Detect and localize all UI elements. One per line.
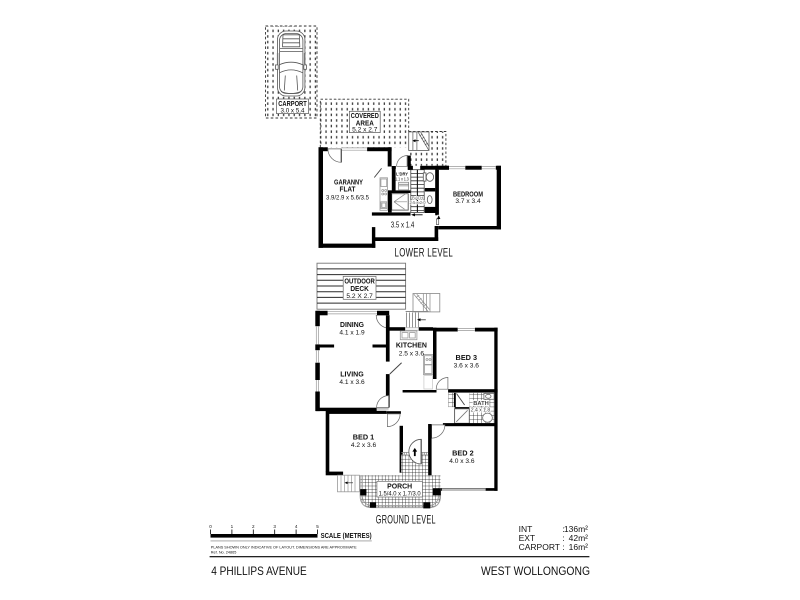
svg-text:4.0 x 3.6: 4.0 x 3.6 xyxy=(449,458,475,465)
svg-text:4.1 x 1.9: 4.1 x 1.9 xyxy=(339,329,365,336)
svg-text:SCALE (METRES): SCALE (METRES) xyxy=(321,531,372,540)
svg-text:4: 4 xyxy=(295,524,298,529)
svg-text:4.2 x 3.6: 4.2 x 3.6 xyxy=(351,442,377,449)
svg-text:5.2 x 2.7: 5.2 x 2.7 xyxy=(352,127,378,134)
svg-text:3.6 x 3.6: 3.6 x 3.6 xyxy=(454,362,480,369)
svg-text:1.5/4.0 x 1.7/3.0: 1.5/4.0 x 1.7/3.0 xyxy=(379,491,421,498)
svg-text:CARPORT: CARPORT xyxy=(519,542,560,552)
svg-text:5.2 X 2.7: 5.2 X 2.7 xyxy=(346,293,373,300)
svg-text:3.0 x 5.4: 3.0 x 5.4 xyxy=(281,108,305,115)
svg-text:GROUND LEVEL: GROUND LEVEL xyxy=(376,514,436,527)
svg-text:5: 5 xyxy=(316,524,319,529)
svg-text:2.5 x 2.0: 2.5 x 2.0 xyxy=(410,200,427,205)
svg-text:WEST WOLLONGONG: WEST WOLLONGONG xyxy=(481,564,590,578)
svg-text:0: 0 xyxy=(209,524,212,529)
svg-text::: : xyxy=(562,542,564,552)
svg-text:4.1 x 3.6: 4.1 x 3.6 xyxy=(339,379,365,386)
svg-text:16m²: 16m² xyxy=(569,542,589,552)
svg-text:2.4 x 1.8: 2.4 x 1.8 xyxy=(471,407,491,413)
svg-text:4 PHILLIPS AVENUE: 4 PHILLIPS AVENUE xyxy=(211,564,307,578)
svg-text:BATH: BATH xyxy=(473,401,489,407)
svg-text:LOWER LEVEL: LOWER LEVEL xyxy=(395,246,454,259)
svg-text:3.5 x 1.4: 3.5 x 1.4 xyxy=(391,221,415,230)
svg-text:BED 1: BED 1 xyxy=(353,434,375,441)
svg-text:3.9/2.9 x 5.6/3.5: 3.9/2.9 x 5.6/3.5 xyxy=(326,194,369,201)
svg-text:2.5 x 3.6: 2.5 x 3.6 xyxy=(399,350,425,357)
svg-text:Ref. No. 24865: Ref. No. 24865 xyxy=(211,551,237,555)
svg-text:COVERED: COVERED xyxy=(351,113,379,120)
svg-text:DINING: DINING xyxy=(340,322,365,329)
svg-text:KITCHEN: KITCHEN xyxy=(396,343,427,350)
svg-text:GARANNY: GARANNY xyxy=(334,180,363,187)
svg-text:LIVING: LIVING xyxy=(340,372,364,379)
svg-text:PLANS SHOWN ONLY INDICATIVE OF: PLANS SHOWN ONLY INDICATIVE OF LAYOUT. D… xyxy=(211,545,357,549)
svg-text:2: 2 xyxy=(252,524,255,529)
svg-text:BED 2: BED 2 xyxy=(452,450,474,457)
svg-text:FLAT: FLAT xyxy=(340,187,357,194)
svg-text:PORCH: PORCH xyxy=(387,484,412,491)
svg-text:3.7 x 3.4: 3.7 x 3.4 xyxy=(455,198,481,205)
svg-text:1: 1 xyxy=(231,524,234,529)
svg-text:1.1 x 1.3: 1.1 x 1.3 xyxy=(395,177,409,182)
svg-text:OUTDOOR: OUTDOOR xyxy=(344,279,375,286)
svg-text:BED 3: BED 3 xyxy=(456,355,478,362)
svg-text:3: 3 xyxy=(273,524,276,529)
